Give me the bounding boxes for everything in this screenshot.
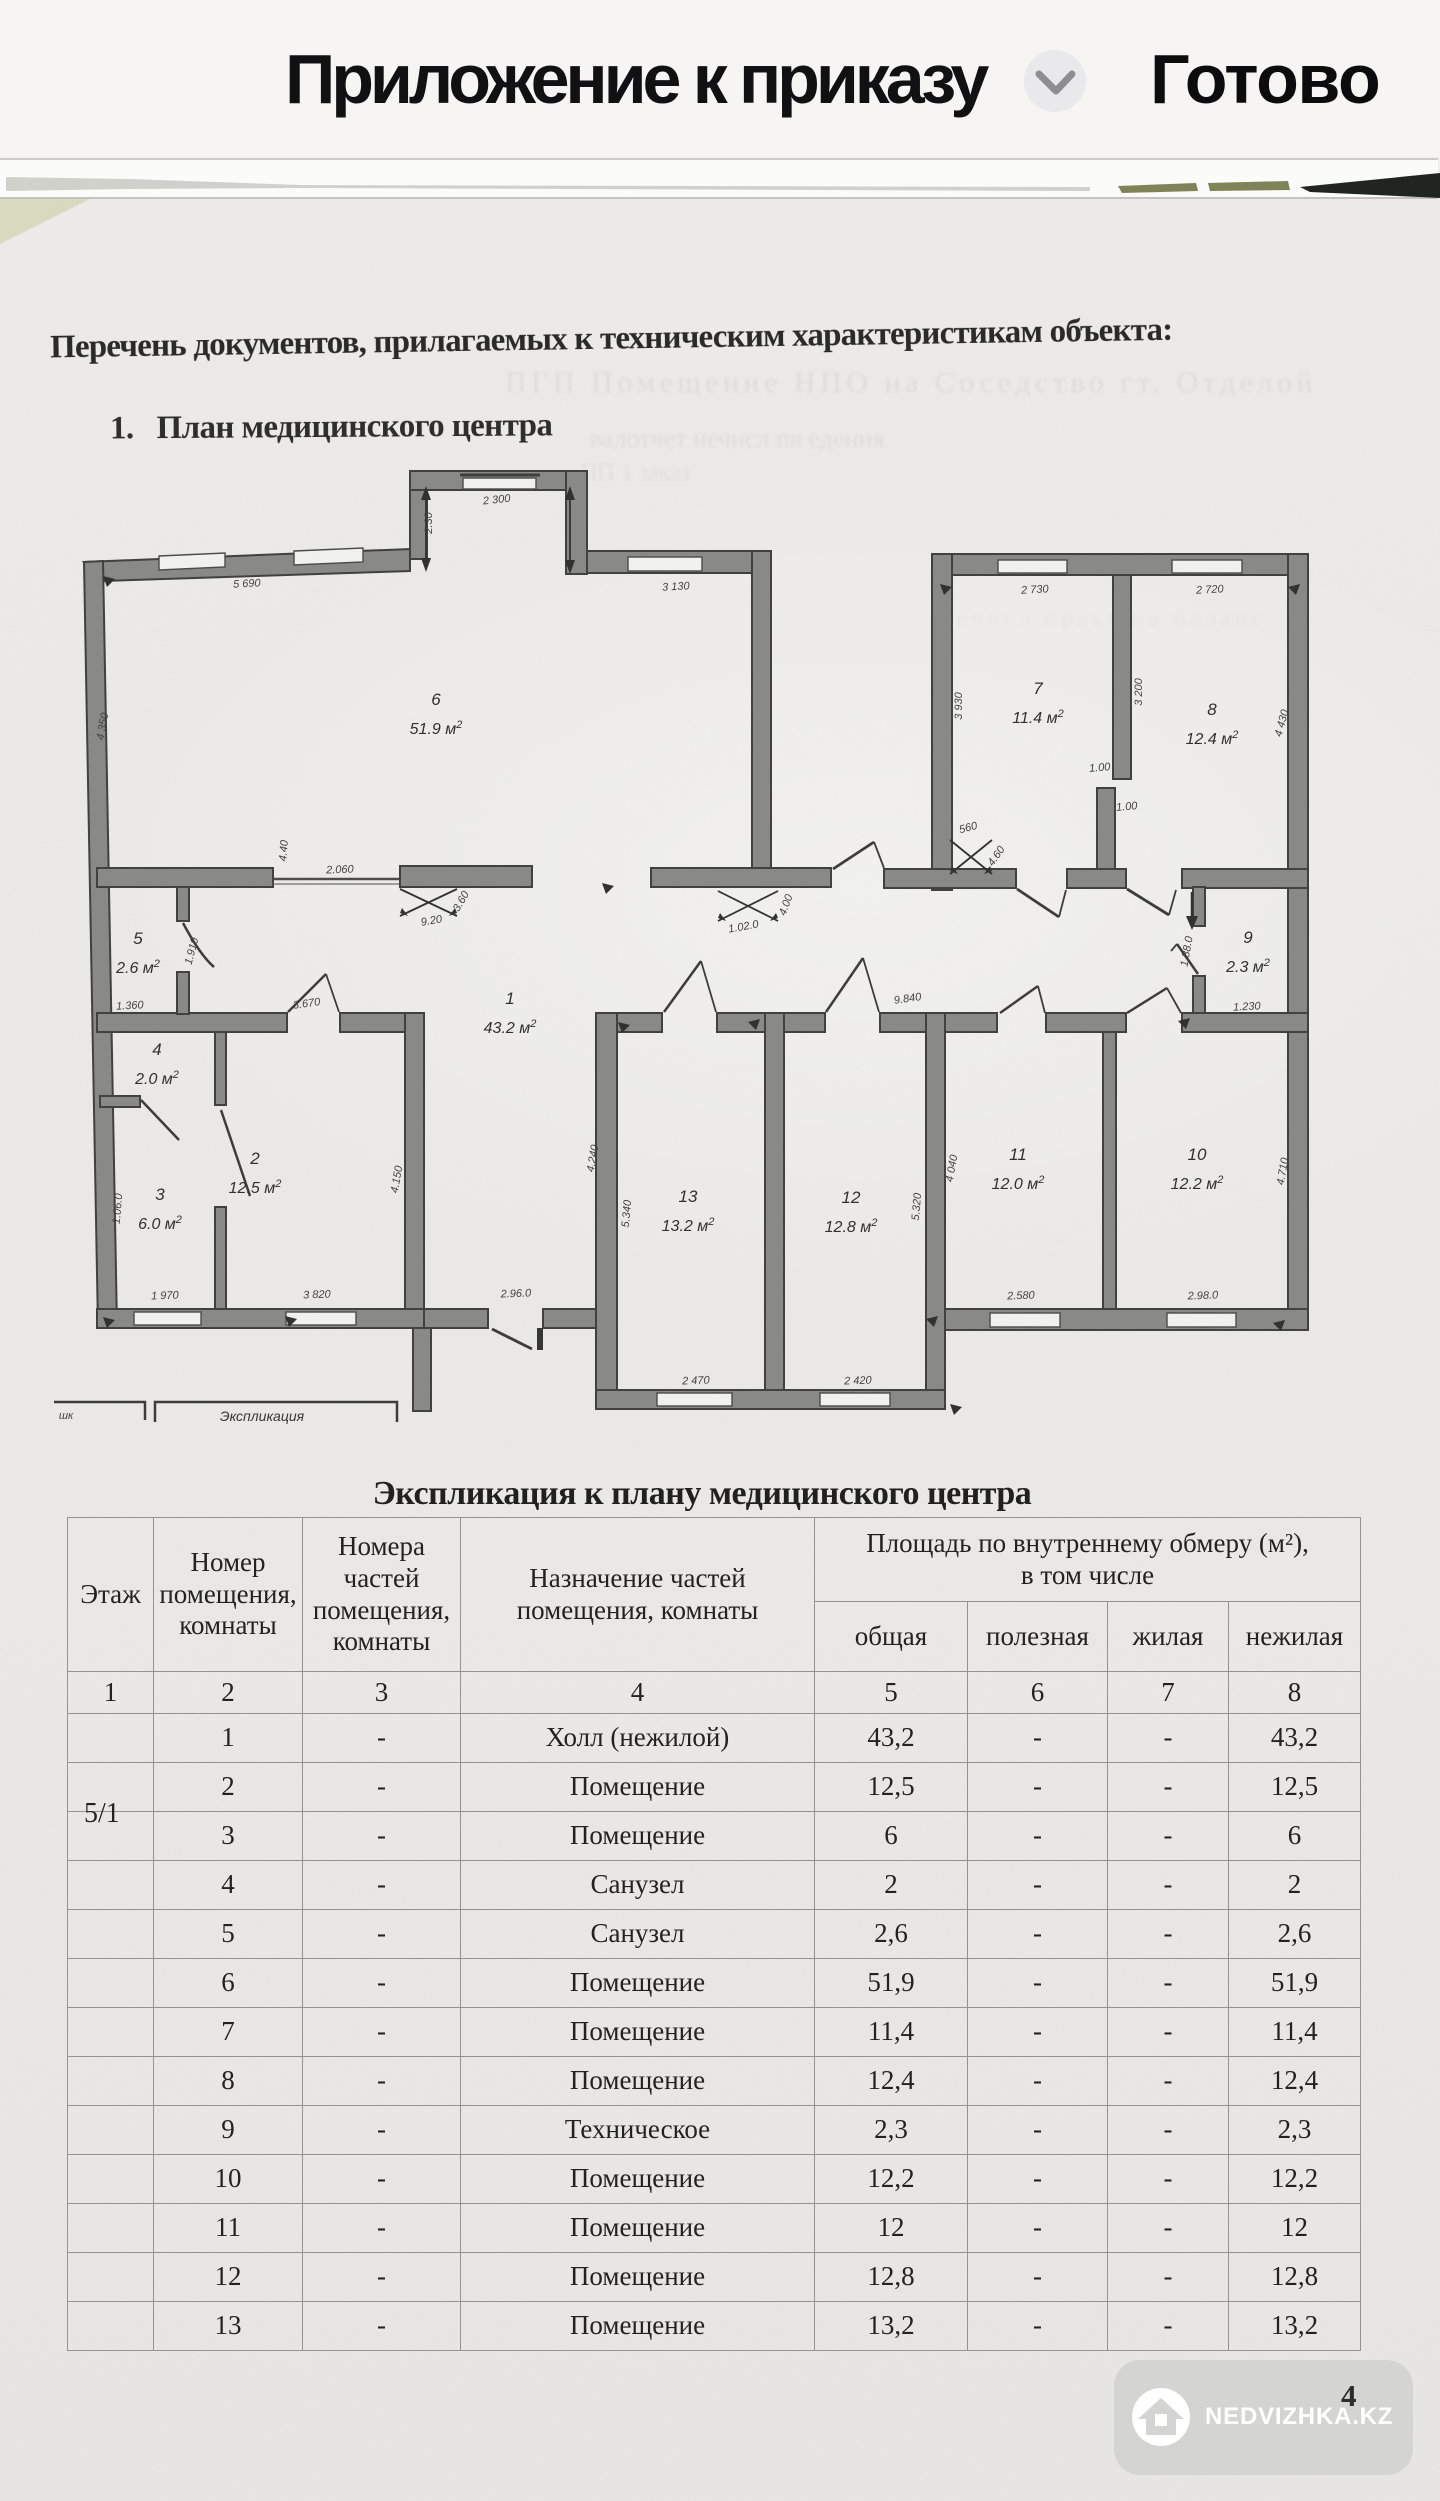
svg-text:3 930: 3 930 [953,691,965,719]
svg-text:10: 10 [1188,1145,1207,1164]
svg-text:2.96.0: 2.96.0 [499,1287,532,1300]
svg-text:2.98.0: 2.98.0 [1186,1289,1219,1302]
svg-text:4: 4 [152,1040,161,1059]
svg-text:13: 13 [679,1187,698,1206]
svg-text:Экспликация: Экспликация [220,1408,305,1424]
svg-text:12.2 м2: 12.2 м2 [1171,1174,1224,1193]
svg-text:5 690: 5 690 [233,577,262,590]
svg-text:5.340: 5.340 [620,1199,634,1228]
svg-text:3 130: 3 130 [662,580,691,593]
svg-text:8: 8 [1207,700,1217,719]
svg-text:2: 2 [249,1149,260,1168]
svg-text:1.06.0: 1.06.0 [111,1192,126,1224]
svg-text:3.670: 3.670 [292,996,322,1012]
svg-text:2.6 м2: 2.6 м2 [115,958,160,977]
svg-text:3: 3 [155,1185,165,1204]
svg-text:4.40: 4.40 [277,839,291,862]
svg-text:12.0 м2: 12.0 м2 [992,1174,1045,1193]
svg-text:2 730: 2 730 [1020,583,1050,597]
svg-text:1: 1 [505,989,514,1008]
svg-text:7: 7 [1033,679,1043,698]
svg-text:1.00: 1.00 [1089,761,1112,775]
svg-text:4.60: 4.60 [985,843,1008,868]
svg-text:3 200: 3 200 [1133,677,1145,705]
svg-text:9.840: 9.840 [893,991,923,1007]
svg-text:2 300: 2 300 [481,493,512,508]
svg-text:6: 6 [431,690,441,709]
svg-text:2.580: 2.580 [1006,1289,1036,1302]
svg-text:4.00: 4.00 [777,892,796,917]
svg-text:2.30: 2.30 [423,511,435,534]
svg-text:6.0 м2: 6.0 м2 [138,1214,182,1233]
svg-text:12.8 м2: 12.8 м2 [825,1217,878,1236]
svg-text:560: 560 [958,820,980,837]
svg-text:13.2 м2: 13.2 м2 [662,1216,715,1235]
svg-text:12.4 м2: 12.4 м2 [1186,729,1239,748]
svg-text:51.9 м2: 51.9 м2 [410,719,463,738]
svg-text:1.88.0: 1.88.0 [1178,935,1195,968]
svg-text:1.230: 1.230 [1233,1000,1262,1013]
svg-text:5.320: 5.320 [910,1192,924,1221]
svg-text:1.02.0: 1.02.0 [727,918,760,935]
svg-text:11.4 м2: 11.4 м2 [1012,708,1064,727]
svg-text:2 420: 2 420 [843,1374,873,1387]
svg-text:12.5 м2: 12.5 м2 [229,1178,282,1197]
svg-text:1.00: 1.00 [1116,800,1139,814]
svg-text:43.2 м2: 43.2 м2 [484,1018,537,1037]
svg-text:4 040: 4 040 [944,1153,961,1183]
svg-text:3.60: 3.60 [451,888,473,913]
svg-text:11: 11 [1009,1145,1027,1164]
svg-text:4.150: 4.150 [389,1164,406,1194]
svg-text:12: 12 [842,1188,861,1207]
svg-text:9: 9 [1243,928,1253,947]
svg-text:5: 5 [133,929,143,948]
svg-text:3 820: 3 820 [303,1288,332,1301]
svg-text:2.3 м2: 2.3 м2 [1225,957,1270,976]
svg-text:2 720: 2 720 [1195,583,1225,597]
svg-text:2.060: 2.060 [325,863,355,876]
svg-text:2 470: 2 470 [681,1374,711,1387]
svg-text:шк: шк [59,1410,74,1422]
svg-text:9.20: 9.20 [420,913,444,929]
svg-text:1 970: 1 970 [151,1289,180,1302]
svg-text:2.0 м2: 2.0 м2 [134,1069,179,1088]
svg-text:1.360: 1.360 [116,999,145,1012]
